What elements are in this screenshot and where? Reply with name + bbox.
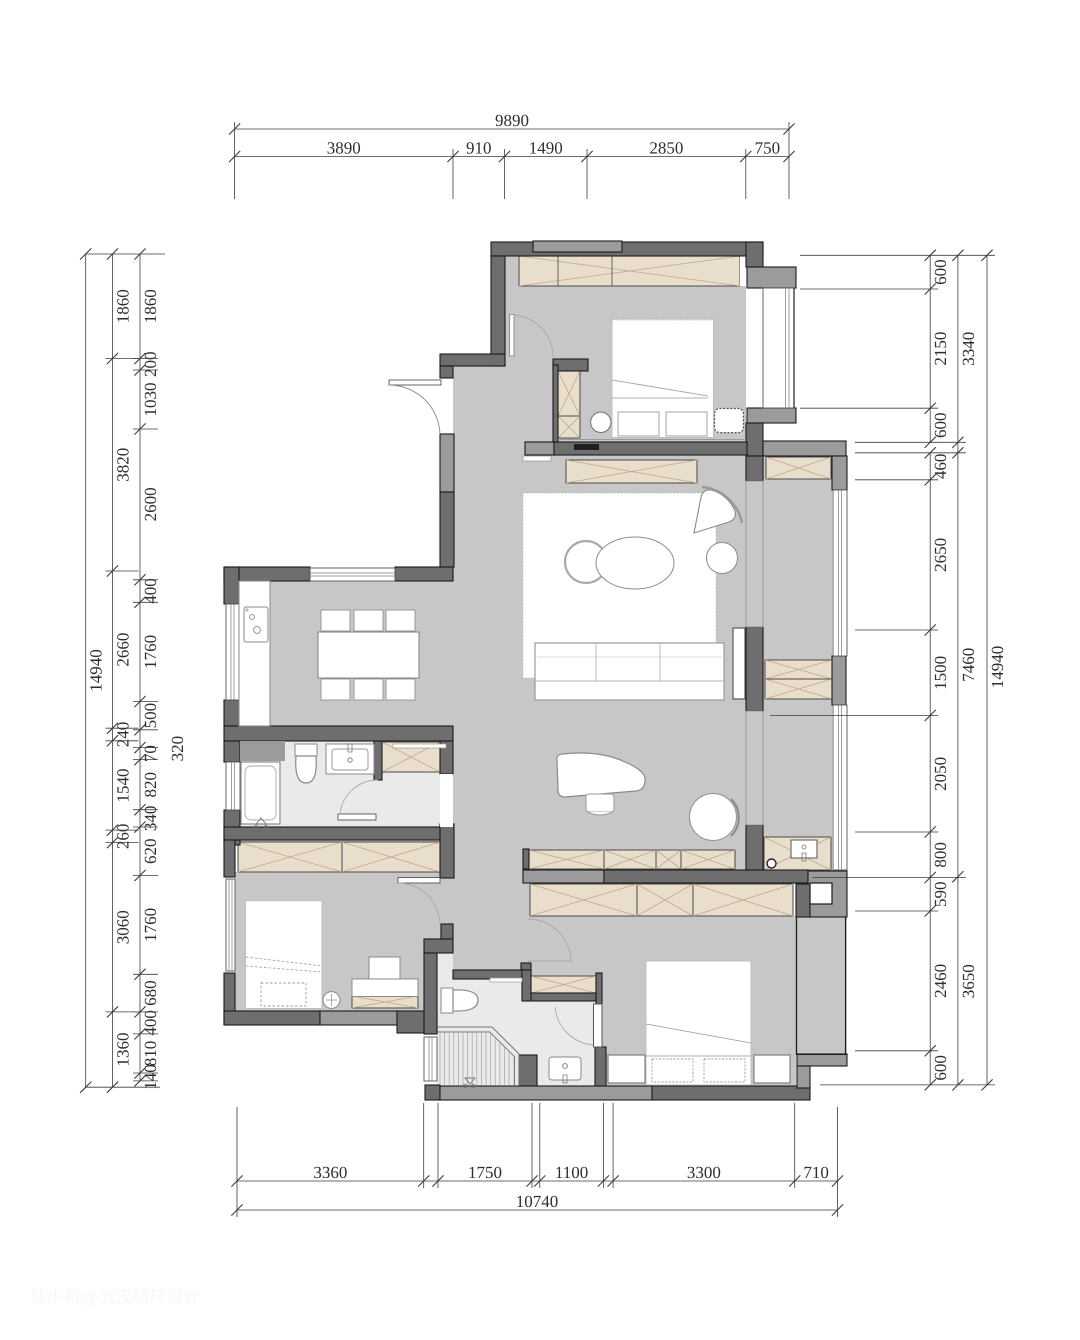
svg-text:400: 400 xyxy=(141,1010,160,1036)
svg-text:400: 400 xyxy=(141,578,160,604)
svg-text:3300: 3300 xyxy=(687,1163,721,1182)
svg-text:620: 620 xyxy=(141,838,160,864)
svg-text:1500: 1500 xyxy=(931,656,950,690)
svg-text:14940: 14940 xyxy=(87,649,106,692)
svg-text:600: 600 xyxy=(931,259,950,285)
svg-text:7460: 7460 xyxy=(959,648,978,682)
svg-text:1760: 1760 xyxy=(141,908,160,942)
svg-text:1860: 1860 xyxy=(141,289,160,323)
svg-text:590: 590 xyxy=(931,881,950,907)
svg-text:240: 240 xyxy=(114,722,133,748)
svg-text:3650: 3650 xyxy=(959,964,978,998)
svg-text:14940: 14940 xyxy=(988,646,1007,689)
svg-text:2600: 2600 xyxy=(141,487,160,521)
svg-text:2650: 2650 xyxy=(931,538,950,572)
svg-text:住小帮@武汉陋尺设计: 住小帮@武汉陋尺设计 xyxy=(30,1288,200,1307)
svg-text:1490: 1490 xyxy=(529,139,563,158)
svg-text:320: 320 xyxy=(168,736,187,762)
svg-text:3340: 3340 xyxy=(959,332,978,366)
svg-text:1750: 1750 xyxy=(468,1163,502,1182)
svg-text:460: 460 xyxy=(931,454,950,480)
svg-text:810: 810 xyxy=(141,1041,160,1067)
svg-text:1540: 1540 xyxy=(114,769,133,803)
svg-text:600: 600 xyxy=(931,1055,950,1081)
svg-text:10740: 10740 xyxy=(516,1192,559,1211)
svg-text:1760: 1760 xyxy=(141,635,160,669)
svg-text:3890: 3890 xyxy=(327,139,361,158)
svg-text:9890: 9890 xyxy=(495,111,529,130)
svg-text:3360: 3360 xyxy=(313,1163,347,1182)
svg-text:140: 140 xyxy=(141,1064,160,1090)
svg-text:600: 600 xyxy=(931,412,950,438)
svg-text:2050: 2050 xyxy=(931,757,950,791)
svg-text:260: 260 xyxy=(114,824,133,850)
svg-text:750: 750 xyxy=(755,139,781,158)
svg-text:1100: 1100 xyxy=(555,1163,588,1182)
svg-text:2850: 2850 xyxy=(649,139,683,158)
svg-text:680: 680 xyxy=(141,980,160,1006)
svg-text:3060: 3060 xyxy=(114,910,133,944)
svg-text:200: 200 xyxy=(141,351,160,377)
svg-text:2460: 2460 xyxy=(931,964,950,998)
svg-text:2150: 2150 xyxy=(931,332,950,366)
svg-text:1860: 1860 xyxy=(114,289,133,323)
svg-text:820: 820 xyxy=(141,772,160,798)
svg-text:1360: 1360 xyxy=(114,1033,133,1067)
svg-text:3820: 3820 xyxy=(114,448,133,482)
svg-text:1030: 1030 xyxy=(141,383,160,417)
svg-text:910: 910 xyxy=(466,139,492,158)
svg-text:800: 800 xyxy=(931,842,950,868)
svg-text:2660: 2660 xyxy=(114,633,133,667)
svg-text:500: 500 xyxy=(141,703,160,729)
svg-text:710: 710 xyxy=(803,1163,829,1182)
